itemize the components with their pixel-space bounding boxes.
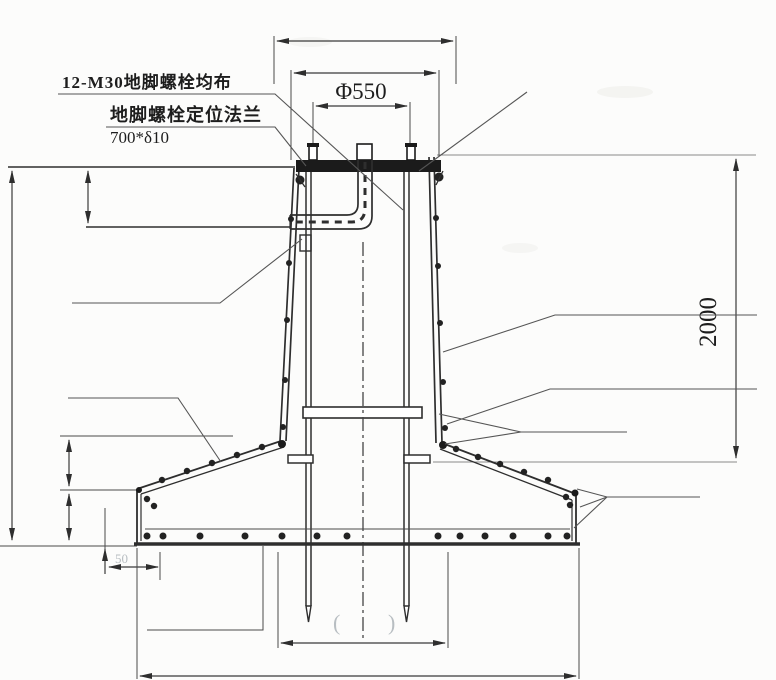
faint-paren-right: ) bbox=[388, 610, 395, 635]
scan-smudges bbox=[288, 37, 653, 253]
footing-slope-inner bbox=[141, 447, 572, 500]
leader-top-right bbox=[419, 92, 527, 171]
top-dimensions: Φ550 bbox=[274, 36, 456, 160]
footing bbox=[134, 440, 580, 630]
dim-height-text: 2000 bbox=[695, 297, 722, 347]
footing-edge-inner bbox=[141, 494, 572, 541]
pedestal bbox=[280, 143, 448, 638]
foundation-section-drawing: Φ550 2000 50 bbox=[0, 0, 776, 680]
pedestal-left-wall bbox=[280, 168, 299, 441]
bolt-foot-plate-left bbox=[288, 455, 313, 463]
bottom-dimensions: ( ) bbox=[137, 548, 579, 679]
bedding-step-line bbox=[147, 546, 263, 630]
footing-width-extensions bbox=[137, 548, 579, 679]
bolt-foot-plate-right bbox=[404, 455, 430, 463]
label-flange-size: 700*δ10 bbox=[110, 128, 169, 147]
label-positioning-flange: 地脚螺栓定位法兰 bbox=[110, 104, 262, 125]
slope-rebar-dots bbox=[144, 444, 573, 509]
drawing-sheet: Φ550 2000 50 bbox=[0, 0, 776, 680]
anchor-bolt-rod-right bbox=[404, 172, 409, 622]
footing-rebar-dots bbox=[144, 533, 571, 540]
pedestal-right-wall bbox=[429, 157, 442, 443]
faint-paren-left: ( bbox=[333, 610, 340, 635]
conduit-top-stub bbox=[357, 144, 372, 160]
dim-phi550-text: Φ550 bbox=[335, 79, 386, 104]
leader-left-conduit bbox=[72, 239, 302, 303]
footing-slope-outer bbox=[137, 441, 576, 494]
height-dimension: 2000 bbox=[433, 159, 737, 462]
corner-hooks bbox=[136, 440, 579, 497]
edge-offset-text: 50 bbox=[115, 551, 128, 566]
leader-footing-edge-fan bbox=[574, 489, 700, 528]
label-anchor-bolts: 12-M30地脚螺栓均布 bbox=[62, 72, 232, 92]
leader-right-wall-lower bbox=[447, 389, 757, 424]
leader-left-slope bbox=[68, 398, 221, 462]
reference-lines bbox=[0, 155, 756, 546]
callout-labels: 12-M30地脚螺栓均布 地脚螺栓定位法兰 700*δ10 bbox=[62, 72, 262, 147]
leader-right-slope bbox=[439, 414, 627, 444]
